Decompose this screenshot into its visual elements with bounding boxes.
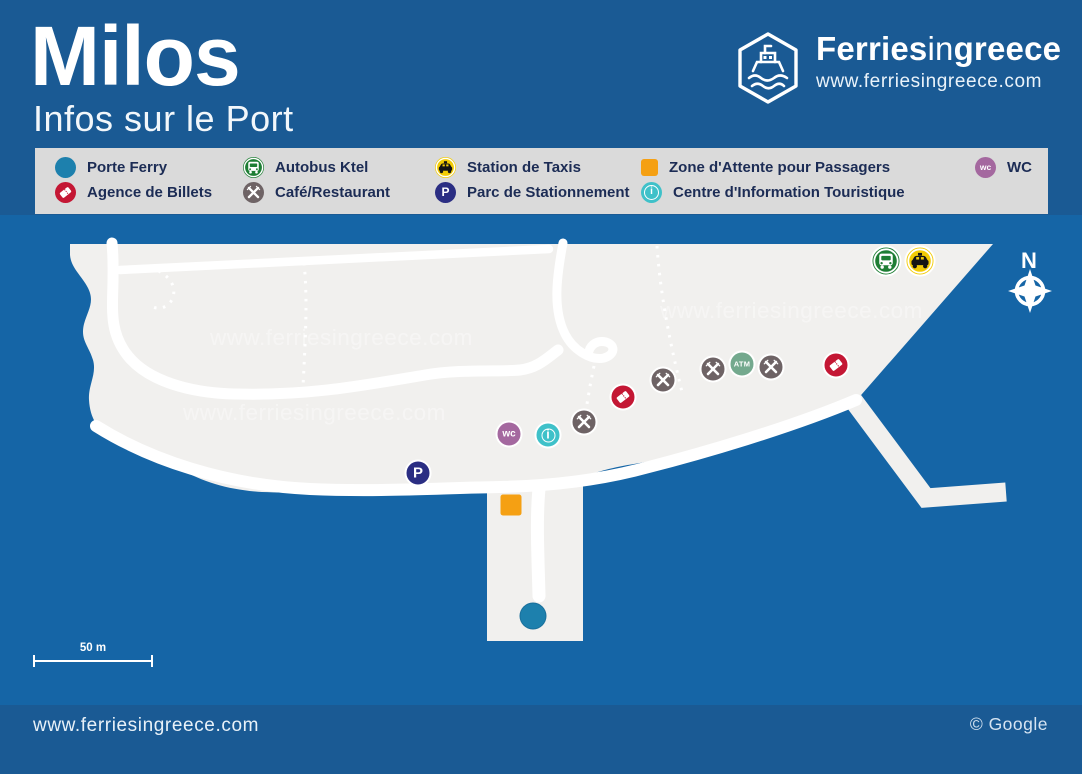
map-marker-wc: wc [496, 421, 523, 448]
map-marker-cafe [571, 409, 598, 436]
scale-label: 50 m [80, 642, 106, 654]
map-watermark: www.ferriesingreece.com [209, 325, 473, 350]
map-marker-ferry [520, 603, 547, 630]
footer-url: www.ferriesingreece.com [33, 715, 259, 737]
map-marker-atm: ATM [729, 351, 756, 378]
map-marker-cafe [700, 356, 727, 383]
map-marker-bus [871, 246, 902, 277]
map-marker-waiting [501, 495, 522, 516]
map-marker-cafe [758, 354, 785, 381]
map-marker-parking: P [405, 460, 432, 487]
map-credit: © Google [970, 714, 1048, 735]
port-map-page: Milos Infos sur le Port Ferriesingreece … [0, 0, 1082, 774]
map-marker-ticket [823, 352, 850, 379]
map-marker-info: i [535, 422, 562, 449]
map-watermark: www.ferriesingreece.com [659, 298, 923, 323]
map-marker-cafe [650, 367, 677, 394]
map-marker-taxi [905, 246, 936, 277]
map-marker-ticket [610, 384, 637, 411]
compass-north-label: N [1021, 248, 1037, 273]
port-map: www.ferriesingreece.com www.ferriesingre… [0, 0, 1082, 774]
map-watermark: www.ferriesingreece.com [182, 400, 446, 425]
